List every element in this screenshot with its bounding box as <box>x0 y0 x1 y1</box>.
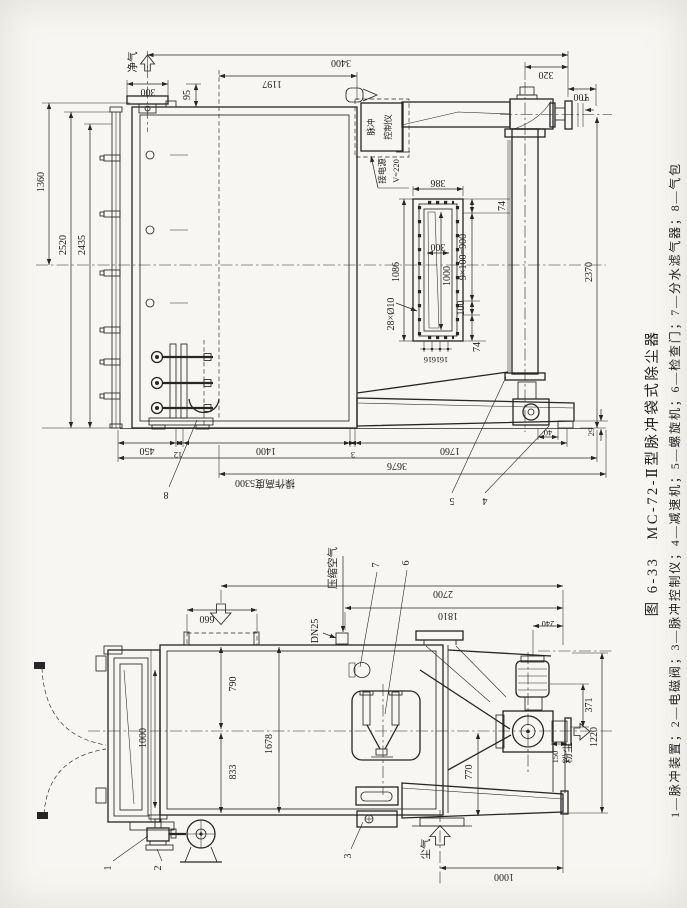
dim-1086: 1086 <box>391 262 402 282</box>
dim-2435: 2435 <box>77 235 88 255</box>
dim-320: 320 <box>539 69 554 80</box>
dust-collector-drawing: 净气 脉冲 控制仪 接电源 V=220 <box>0 0 687 908</box>
side-view: 净气 脉冲 控制仪 接电源 V=220 <box>36 51 612 506</box>
dim-1220: 1220 <box>589 727 600 747</box>
outlet-stub <box>416 631 506 702</box>
water-separator <box>354 663 370 678</box>
leader-5: 5 <box>450 495 455 506</box>
access-door: 1000 <box>34 646 174 830</box>
dim-operating-height: 操作高度5300 <box>235 477 295 490</box>
door-swing-arc-lower <box>44 749 106 814</box>
dim-74-top: 74 <box>497 201 508 211</box>
dim-300-top: 300 <box>141 86 156 97</box>
power-label: 接电源 <box>377 158 387 184</box>
pulse-valve-row <box>152 352 214 414</box>
compressed-air-inlet: 压缩空气 DN25 <box>310 547 348 644</box>
dim-1400: 1400 <box>256 445 276 456</box>
internals <box>349 663 420 761</box>
dim-1810: 1810 <box>438 610 458 621</box>
door-handle-upper <box>34 662 45 669</box>
door-swing-arc-upper <box>42 668 106 745</box>
end-view-dimensions: 2700 1810 240 790 833 1678 770 371 150 1… <box>221 586 608 816</box>
caption-parts-list: 1—脉冲装置；2—电磁阀；3—脉冲控制仪；4—减速机；5—螺旋机；6—检查门；7… <box>667 162 682 818</box>
dim-2520: 2520 <box>58 235 69 255</box>
pulse-controller: 脉冲 控制仪 接电源 V=220 <box>355 99 409 188</box>
pulse-air-package <box>149 340 219 429</box>
dim-371: 371 <box>584 698 595 713</box>
motor <box>516 661 549 697</box>
bottom-trough: 尘气 1000 <box>402 783 568 882</box>
dim-300-slot: 300 <box>431 241 446 252</box>
dim-450: 450 <box>140 445 155 456</box>
dim-2700: 2700 <box>433 588 453 599</box>
leader-3: 3 <box>343 854 354 859</box>
end-view: 660 压缩空气 DN25 1000 <box>34 547 614 884</box>
controller-edge <box>356 787 398 827</box>
dim-29: 29 <box>586 428 596 437</box>
dust-out-arrow-icon <box>574 724 590 741</box>
dim-16-a: 16 <box>424 355 433 365</box>
bag-bolts <box>100 155 120 399</box>
controller-label-2: 控制仪 <box>383 114 393 140</box>
dn25-label: DN25 <box>310 619 321 643</box>
dim-100-flange: 100 <box>456 301 467 316</box>
scanned-figure-page: 净气 脉冲 控制仪 接电源 V=220 <box>0 0 687 908</box>
compressed-air-label: 压缩空气 <box>326 547 339 589</box>
dim-16-c: 16 <box>440 355 449 365</box>
dim-790: 790 <box>228 677 239 692</box>
controller-label-1: 脉冲 <box>366 118 376 135</box>
top-opening: 660 <box>184 604 259 645</box>
leader-8: 8 <box>164 489 169 500</box>
leader-4: 4 <box>483 495 488 506</box>
dim-833: 833 <box>228 765 239 780</box>
top-dimensions: 3400 1197 300 95 <box>127 51 568 107</box>
dim-660: 660 <box>200 613 215 624</box>
leader-2: 2 <box>153 866 164 871</box>
leader-6: 6 <box>401 561 412 566</box>
flange-detail: 386 74 9×100=900 100 74 1086 28×Ø10 300 … <box>386 177 510 365</box>
casing <box>160 645 448 815</box>
dirty-air-label: 尘气 <box>419 838 432 859</box>
leader-1: 1 <box>103 866 114 871</box>
dim-150: 150 <box>550 751 560 764</box>
dim-770: 770 <box>464 765 475 780</box>
dim-3400: 3400 <box>331 57 351 68</box>
dim-16-b: 16 <box>432 355 441 365</box>
side-view-leaders: 8 5 4 <box>164 377 550 506</box>
dim-2370: 2370 <box>584 262 595 282</box>
figure-caption: 图 6-33 MC-72-Ⅱ型脉冲袋式除尘器 1—脉冲装置；2—电磁阀；3—脉冲… <box>644 162 682 818</box>
dim-3-gap: 3 <box>351 450 355 460</box>
dim-1760: 1760 <box>440 445 460 456</box>
dim-40: 40 <box>544 428 553 438</box>
dim-1000-slot: 1000 <box>442 266 453 286</box>
inspection-door <box>352 691 420 760</box>
dim-1360: 1360 <box>36 172 47 192</box>
leader-7: 7 <box>371 563 382 568</box>
door-handle-lower <box>37 812 48 819</box>
discharge-assembly: 粉尘 <box>420 650 590 793</box>
outlet-elbow <box>510 87 583 129</box>
clean-air-outlet: 净气 <box>126 51 168 113</box>
dim-9x100: 9×100=900 <box>458 234 469 280</box>
gear-reducer <box>518 382 536 399</box>
dim-240: 240 <box>542 619 555 629</box>
dim-1678: 1678 <box>264 734 275 754</box>
dust-label: 粉尘 <box>561 742 574 763</box>
dim-1197: 1197 <box>262 78 282 89</box>
dim-386: 386 <box>431 177 446 188</box>
dim-1000-door: 1000 <box>138 728 149 748</box>
end-view-leaders: 7 6 3 1 2 <box>103 561 412 871</box>
caption-title: 图 6-33 MC-72-Ⅱ型脉冲袋式除尘器 <box>644 330 661 617</box>
dim-74-bottom: 74 <box>472 342 483 352</box>
dim-95: 95 <box>182 90 193 100</box>
dim-5: 5 <box>581 97 592 102</box>
dim-3676: 3676 <box>387 460 407 471</box>
voltage-label: V=220 <box>391 159 401 183</box>
clean-air-label: 净气 <box>126 51 139 72</box>
dim-1000-bottom: 1000 <box>494 871 514 882</box>
dim-28xd10: 28×Ø10 <box>386 298 397 331</box>
